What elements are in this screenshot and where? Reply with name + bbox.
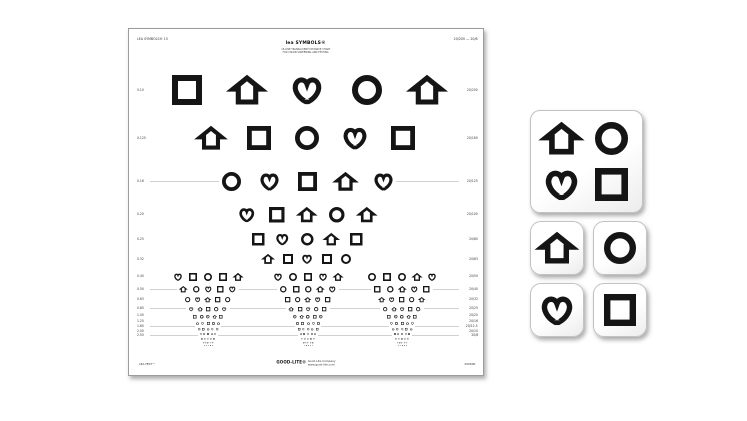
- acuity-label-left: 0.16: [137, 180, 144, 183]
- acuity-label-left: 0.25: [137, 237, 144, 240]
- lea-house-icon: [359, 207, 375, 223]
- lea-house-icon: [213, 315, 217, 319]
- flashcard-house: [530, 221, 584, 275]
- card-symbol-square: [604, 294, 636, 326]
- optotype: [274, 273, 282, 281]
- optotype: [229, 286, 236, 293]
- lea-house-icon: [413, 273, 421, 281]
- lea-circle-icon: [308, 345, 309, 346]
- acuity-label-right: 20/200: [467, 88, 478, 91]
- lea-heart-icon: [428, 273, 436, 281]
- card-symbol-house: [545, 122, 578, 155]
- optotype: [289, 306, 293, 311]
- acuity-label-right: 20/16: [469, 320, 478, 323]
- lea-square-icon: [210, 345, 211, 346]
- lea-circle-icon: [185, 297, 190, 302]
- lea-house-icon: [289, 307, 293, 311]
- optotype: [398, 341, 399, 346]
- optotype: [411, 286, 418, 293]
- lea-square-icon: [293, 286, 300, 293]
- lea-house-icon: [198, 307, 202, 311]
- row-rule: [150, 308, 186, 309]
- lea-square-icon: [313, 315, 317, 319]
- lea-square-icon: [350, 233, 363, 246]
- acuity-label-right: 20/50: [469, 275, 478, 278]
- lea-circle-icon: [341, 254, 351, 264]
- lea-square-icon: [193, 315, 197, 319]
- optotype: [350, 233, 363, 246]
- lea-heart-icon: [302, 254, 312, 264]
- lea-house-icon: [379, 297, 384, 302]
- lea-house-icon: [334, 273, 342, 281]
- lea-house-icon: [545, 122, 578, 155]
- acuity-label-left: 0.125: [137, 136, 146, 139]
- optotype: [322, 254, 332, 264]
- optotype: [400, 306, 404, 311]
- acuity-label-left: 0.40: [137, 275, 144, 278]
- lea-circle-icon: [305, 286, 312, 293]
- optotype: [199, 126, 223, 150]
- lea-heart-icon: [545, 168, 578, 201]
- optotype: [189, 306, 193, 311]
- lea-square-icon: [391, 126, 415, 150]
- optotype: [368, 273, 376, 281]
- acuity-label-right: 20/8: [471, 333, 478, 336]
- acuity-label-right: 20/20: [469, 314, 478, 317]
- lea-square-icon: [304, 273, 312, 281]
- optotype: [314, 306, 318, 311]
- lea-house-icon: [205, 297, 210, 302]
- lea-heart-icon: [400, 307, 404, 311]
- optotype: [399, 297, 404, 302]
- card-symbol-circle: [595, 122, 628, 155]
- lea-house-icon: [232, 75, 262, 105]
- lea-square-icon: [383, 273, 391, 281]
- optotype: [293, 314, 297, 319]
- optotype: [392, 306, 396, 311]
- lea-heart-icon: [343, 126, 367, 150]
- card-symbol-circle: [604, 232, 636, 264]
- lea-circle-icon: [225, 297, 230, 302]
- lea-symbols-product-photo: LEA SYMBOLS® 15 20/200 — 20/8 lea SYMBOL…: [0, 0, 747, 421]
- lea-house-icon: [305, 297, 310, 302]
- row-rule: [150, 326, 195, 327]
- optotype: [172, 75, 202, 105]
- optotype: [189, 273, 197, 281]
- optotype: [298, 306, 302, 311]
- optotype: [428, 273, 436, 281]
- lea-heart-icon: [306, 307, 310, 311]
- lea-circle-icon: [295, 297, 300, 302]
- row-rule: [230, 308, 287, 309]
- optotype: [206, 306, 210, 311]
- row-rule: [150, 335, 198, 336]
- lea-house-icon: [299, 207, 315, 223]
- optotype: [280, 286, 287, 293]
- card-symbol-square: [595, 168, 628, 201]
- optotype: [252, 233, 265, 246]
- optotype: [406, 320, 409, 325]
- optotype: [205, 297, 210, 302]
- acuity-label-right: 20/25: [469, 306, 478, 309]
- acuity-label-right: 20/12.5: [466, 325, 478, 328]
- row-rule: [150, 289, 177, 290]
- optotype: [201, 320, 204, 325]
- optotype: [400, 314, 404, 319]
- optotype: [232, 75, 262, 105]
- lea-square-icon: [172, 75, 202, 105]
- optotype: [219, 314, 223, 319]
- row-rule: [321, 326, 389, 327]
- lea-square-icon: [306, 345, 307, 346]
- optotype: [401, 320, 404, 325]
- optotype: [298, 172, 317, 191]
- optotype: [247, 126, 271, 150]
- row-rule: [318, 335, 392, 336]
- optotype: [336, 172, 355, 191]
- lea-square-icon: [595, 168, 628, 201]
- lea-circle-icon: [214, 307, 218, 311]
- acuity-label-left: 0.50: [137, 288, 144, 291]
- row-rule: [433, 289, 459, 290]
- lea-square-icon: [325, 297, 330, 302]
- optotype: [306, 314, 310, 319]
- optotype: [322, 306, 326, 311]
- lea-house-icon: [310, 345, 311, 346]
- lea-square-icon: [206, 307, 210, 311]
- optotype: [406, 341, 407, 346]
- acuity-label-left: 0.20: [137, 213, 144, 216]
- acuity-label-left: 2.00: [137, 329, 144, 332]
- optotype: [217, 320, 220, 325]
- lea-heart-icon: [276, 233, 289, 246]
- acuity-label-left: 0.80: [137, 306, 144, 309]
- lea-circle-icon: [222, 172, 241, 191]
- lea-house-icon: [399, 286, 406, 293]
- acuity-label-left: 1.00: [137, 314, 144, 317]
- optotype: [394, 314, 398, 319]
- flashcard-circle: [593, 221, 647, 275]
- lea-square-icon: [399, 297, 404, 302]
- optotype: [343, 126, 367, 150]
- optotype: [325, 297, 330, 302]
- lea-heart-icon: [239, 207, 255, 223]
- lea-heart-icon: [292, 75, 322, 105]
- optotype: [352, 75, 382, 105]
- optotype: [389, 297, 394, 302]
- flashcard-heart: [530, 283, 584, 337]
- optotype: [295, 126, 319, 150]
- optotype: [295, 297, 300, 302]
- lea-heart-icon: [312, 345, 313, 346]
- lea-square-icon: [413, 315, 417, 319]
- row-rule: [415, 326, 459, 327]
- lea-heart-icon: [374, 172, 393, 191]
- lea-square-icon: [219, 273, 227, 281]
- optotype: [307, 320, 310, 325]
- lea-square-icon: [374, 286, 381, 293]
- optotype: [222, 306, 226, 311]
- optotype: [276, 233, 289, 246]
- optotype: [313, 314, 317, 319]
- lea-square-icon: [252, 233, 265, 246]
- optotype: [289, 273, 297, 281]
- optotype: [206, 314, 210, 319]
- lea-house-icon: [412, 75, 442, 105]
- row-rule: [396, 181, 460, 182]
- lea-heart-icon: [206, 315, 210, 319]
- optotype: [180, 286, 187, 293]
- acuity-label-left: 1.25: [137, 320, 144, 323]
- lea-square-icon: [269, 207, 285, 223]
- lea-square-icon: [387, 315, 391, 319]
- card-symbol-heart: [545, 168, 578, 201]
- acuity-label-right: 20/63: [469, 257, 478, 260]
- lea-square-icon: [604, 294, 636, 326]
- lea-circle-icon: [301, 233, 314, 246]
- optotype: [198, 306, 202, 311]
- optotype: [306, 306, 310, 311]
- acuity-label-right: 20/125: [467, 180, 478, 183]
- optotype: [412, 75, 442, 105]
- acuity-label-right: 20/80: [469, 237, 478, 240]
- lea-square-icon: [408, 307, 412, 311]
- lea-circle-icon: [416, 307, 420, 311]
- optotype: [400, 341, 401, 346]
- optotype: [196, 320, 199, 325]
- lea-heart-icon: [315, 297, 320, 302]
- lea-house-icon: [404, 345, 405, 346]
- row-rule: [339, 289, 372, 290]
- lea-heart-icon: [208, 345, 209, 346]
- optotype: [383, 306, 387, 311]
- optotype: [193, 286, 200, 293]
- lea-circle-icon: [280, 286, 287, 293]
- optotype: [195, 297, 200, 302]
- lea-house-icon: [541, 232, 573, 264]
- optotype: [222, 172, 241, 191]
- optotype: [293, 286, 300, 293]
- optotype: [225, 297, 230, 302]
- lea-circle-icon: [387, 286, 394, 293]
- optotype: [413, 273, 421, 281]
- lea-circle-icon: [206, 345, 207, 346]
- row-rule: [412, 335, 459, 336]
- lea-circle-icon: [295, 126, 319, 150]
- lea-circle-icon: [289, 273, 297, 281]
- optotype: [304, 273, 312, 281]
- lea-house-icon: [325, 233, 338, 246]
- acuity-label-right: 20/40: [469, 288, 478, 291]
- lea-heart-icon: [394, 315, 398, 319]
- optotype: [296, 320, 299, 325]
- lea-circle-icon: [409, 297, 414, 302]
- acuity-label-left: 1.60: [137, 325, 144, 328]
- lea-heart-icon: [541, 294, 573, 326]
- optotype: [301, 233, 314, 246]
- optotype: [269, 207, 285, 223]
- lea-house-icon: [212, 345, 213, 346]
- lea-square-icon: [322, 307, 326, 311]
- optotype: [319, 314, 323, 319]
- optotype: [413, 314, 417, 319]
- lea-heart-icon: [195, 297, 200, 302]
- optotype-rows: 0.1020/2000.12520/1600.1620/1250.2020/10…: [129, 29, 483, 375]
- optotype: [308, 341, 309, 346]
- lea-heart-icon: [329, 286, 336, 293]
- optotype: [185, 297, 190, 302]
- lea-house-icon: [199, 126, 223, 150]
- optotype: [329, 207, 345, 223]
- lea-square-icon: [298, 172, 317, 191]
- optotype: [423, 286, 430, 293]
- lea-house-icon: [407, 315, 411, 319]
- acuity-label-left: 2.50: [137, 333, 144, 336]
- lea-house-icon: [180, 286, 187, 293]
- optotype: [204, 341, 205, 346]
- lea-circle-icon: [383, 307, 387, 311]
- optotype: [212, 320, 215, 325]
- optotype: [374, 172, 393, 191]
- optotype: [205, 286, 212, 293]
- row-rule: [221, 326, 295, 327]
- lea-circle-icon: [306, 315, 310, 319]
- lea-heart-icon: [389, 297, 394, 302]
- optotype: [206, 341, 207, 346]
- optotype: [317, 286, 324, 293]
- lea-house-icon: [392, 307, 396, 311]
- lea-square-icon: [283, 254, 293, 264]
- lea-heart-icon: [319, 273, 327, 281]
- optotype: [174, 273, 182, 281]
- optotype: [263, 254, 273, 264]
- row-rule: [424, 308, 459, 309]
- lea-heart-icon: [400, 345, 401, 346]
- optotype: [390, 320, 393, 325]
- optotype: [315, 297, 320, 302]
- optotype: [193, 314, 197, 319]
- acuity-label-right: 20/32: [469, 298, 478, 301]
- optotype: [411, 320, 414, 325]
- lea-circle-icon: [204, 273, 212, 281]
- optotype: [399, 286, 406, 293]
- lea-heart-icon: [319, 315, 323, 319]
- flashcards-small-group: [530, 221, 647, 337]
- optotype: [213, 314, 217, 319]
- optotype: [304, 341, 305, 346]
- optotype: [292, 75, 322, 105]
- lea-square-icon: [322, 254, 332, 264]
- lea-square-icon: [285, 297, 290, 302]
- optotype: [419, 297, 424, 302]
- lea-square-icon: [219, 315, 223, 319]
- optotype: [217, 286, 224, 293]
- lea-heart-icon: [304, 345, 305, 346]
- flashcard-square: [593, 283, 647, 337]
- footer-line-2: www.good-lite.com: [308, 363, 336, 366]
- lea-square-icon: [217, 286, 224, 293]
- optotype: [379, 297, 384, 302]
- optotype: [305, 297, 310, 302]
- chart-surface: LEA SYMBOLS® 15 20/200 — 20/8 lea SYMBOL…: [129, 29, 483, 375]
- acuity-label-left: 0.63: [137, 298, 144, 301]
- lea-circle-icon: [604, 232, 636, 264]
- lea-square-icon: [298, 307, 302, 311]
- optotype: [200, 314, 204, 319]
- optotype: [219, 273, 227, 281]
- acuity-label-right: 20/100: [467, 213, 478, 216]
- optotype: [300, 314, 304, 319]
- optotype: [305, 286, 312, 293]
- optotype: [234, 273, 242, 281]
- optotype: [409, 297, 414, 302]
- lea-circle-icon: [398, 273, 406, 281]
- lea-heart-icon: [205, 286, 212, 293]
- lea-square-icon: [247, 126, 271, 150]
- optotype: [301, 320, 304, 325]
- optotype: [208, 341, 209, 346]
- optotype: [404, 341, 405, 346]
- flashcard-large: [530, 110, 643, 213]
- optotype: [374, 286, 381, 293]
- optotype: [402, 341, 403, 346]
- lea-square-icon: [402, 345, 403, 346]
- optotype: [239, 207, 255, 223]
- optotype: [407, 314, 411, 319]
- row-rule: [218, 335, 298, 336]
- lea-circle-icon: [352, 75, 382, 105]
- lea-heart-icon: [411, 286, 418, 293]
- optotype: [398, 273, 406, 281]
- lea-heart-icon: [189, 307, 193, 311]
- card-symbol-house: [541, 232, 573, 264]
- lea-house-icon: [263, 254, 273, 264]
- lea-square-icon: [189, 273, 197, 281]
- optotype: [383, 273, 391, 281]
- optotype: [408, 306, 412, 311]
- acuity-label-right: 20/10: [469, 329, 478, 332]
- lea-square-icon: [215, 297, 220, 302]
- optotype: [299, 207, 315, 223]
- row-rule: [239, 289, 278, 290]
- optotype: [210, 341, 211, 346]
- lea-house-icon: [419, 297, 424, 302]
- footer-catalog-number: 250600: [464, 363, 475, 366]
- optotype: [391, 126, 415, 150]
- optotype: [215, 297, 220, 302]
- lea-symbols-chart: LEA SYMBOLS® 15 20/200 — 20/8 lea SYMBOL…: [128, 28, 484, 376]
- optotype: [214, 306, 218, 311]
- optotype: [306, 341, 307, 346]
- footer-brand-block: GOOD-LITE® Good-Lite Company www.good-li…: [129, 350, 483, 366]
- lea-house-icon: [300, 315, 304, 319]
- optotype: [387, 286, 394, 293]
- optotype: [204, 273, 212, 281]
- optotype: [325, 233, 338, 246]
- optotype: [341, 254, 351, 264]
- lea-circle-icon: [329, 207, 345, 223]
- optotype: [317, 320, 320, 325]
- lea-circle-icon: [314, 307, 318, 311]
- lea-circle-icon: [200, 315, 204, 319]
- lea-house-icon: [336, 172, 355, 191]
- lea-heart-icon: [260, 172, 279, 191]
- lea-circle-icon: [193, 286, 200, 293]
- optotype: [207, 320, 210, 325]
- optotype: [359, 207, 375, 223]
- row-rule: [150, 181, 219, 182]
- lea-heart-icon: [229, 286, 236, 293]
